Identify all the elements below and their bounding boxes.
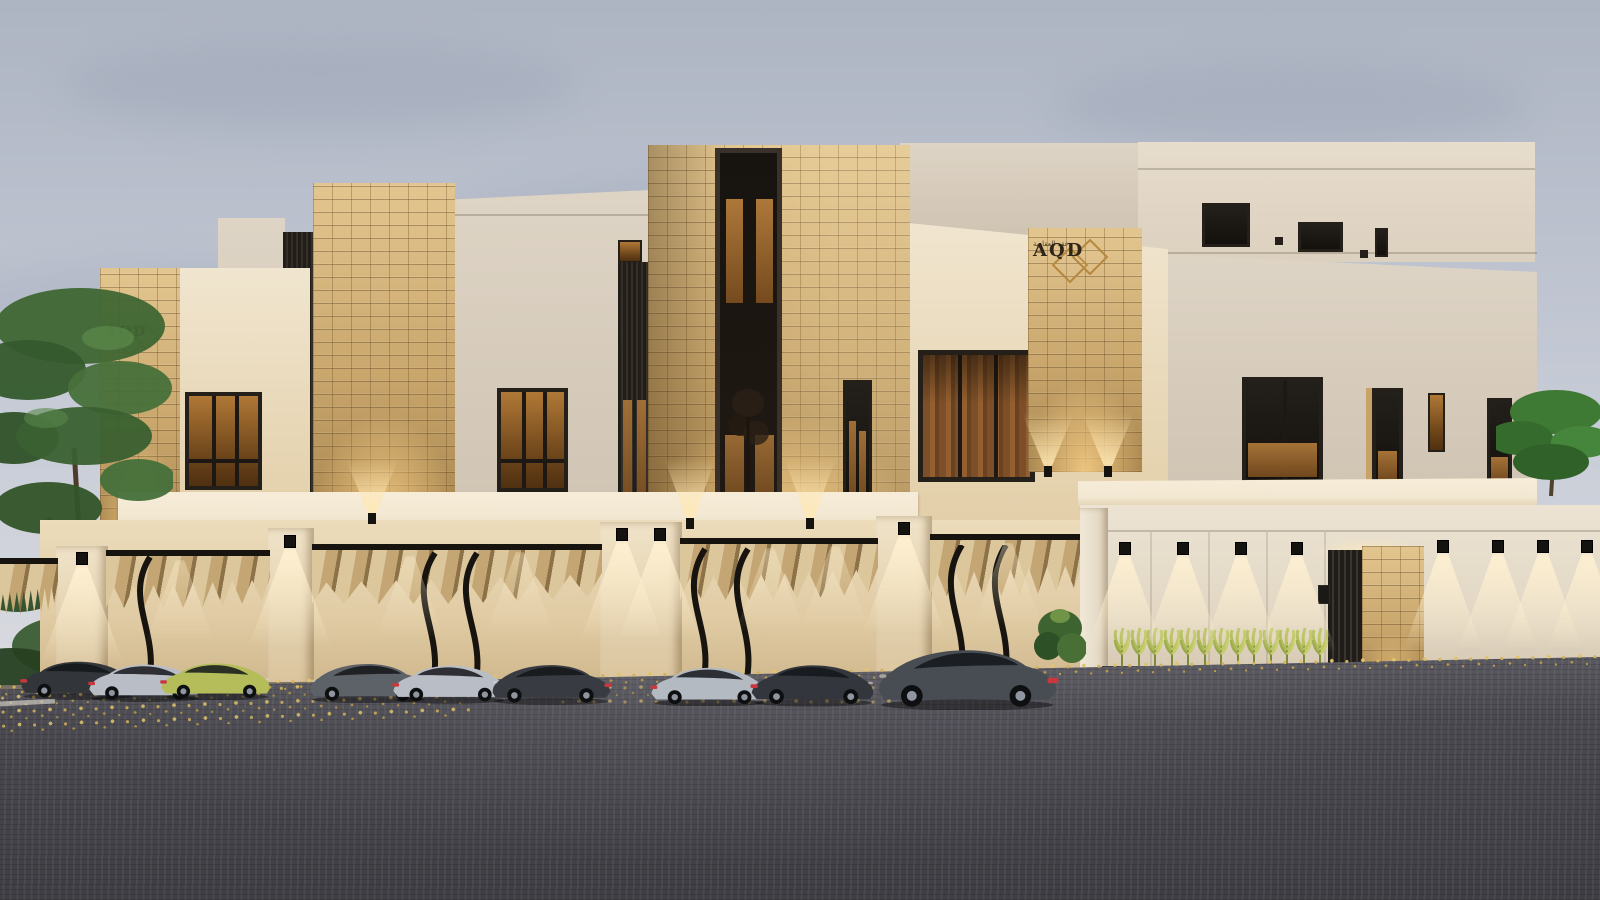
car-silhouette — [488, 657, 614, 705]
car-lime-coupe — [158, 656, 274, 700]
car-silhouette — [872, 638, 1062, 710]
car-silhouette — [158, 656, 274, 700]
car-charcoal-fastback — [488, 657, 614, 705]
car-charcoal-fastback — [748, 657, 878, 707]
car-gunmetal-coupe — [872, 638, 1062, 710]
parked-cars — [0, 0, 1600, 900]
architectural-render-scene: AQD عقد العقارية AQD عقد العقارية — [0, 0, 1600, 900]
car-silhouette — [748, 657, 878, 707]
